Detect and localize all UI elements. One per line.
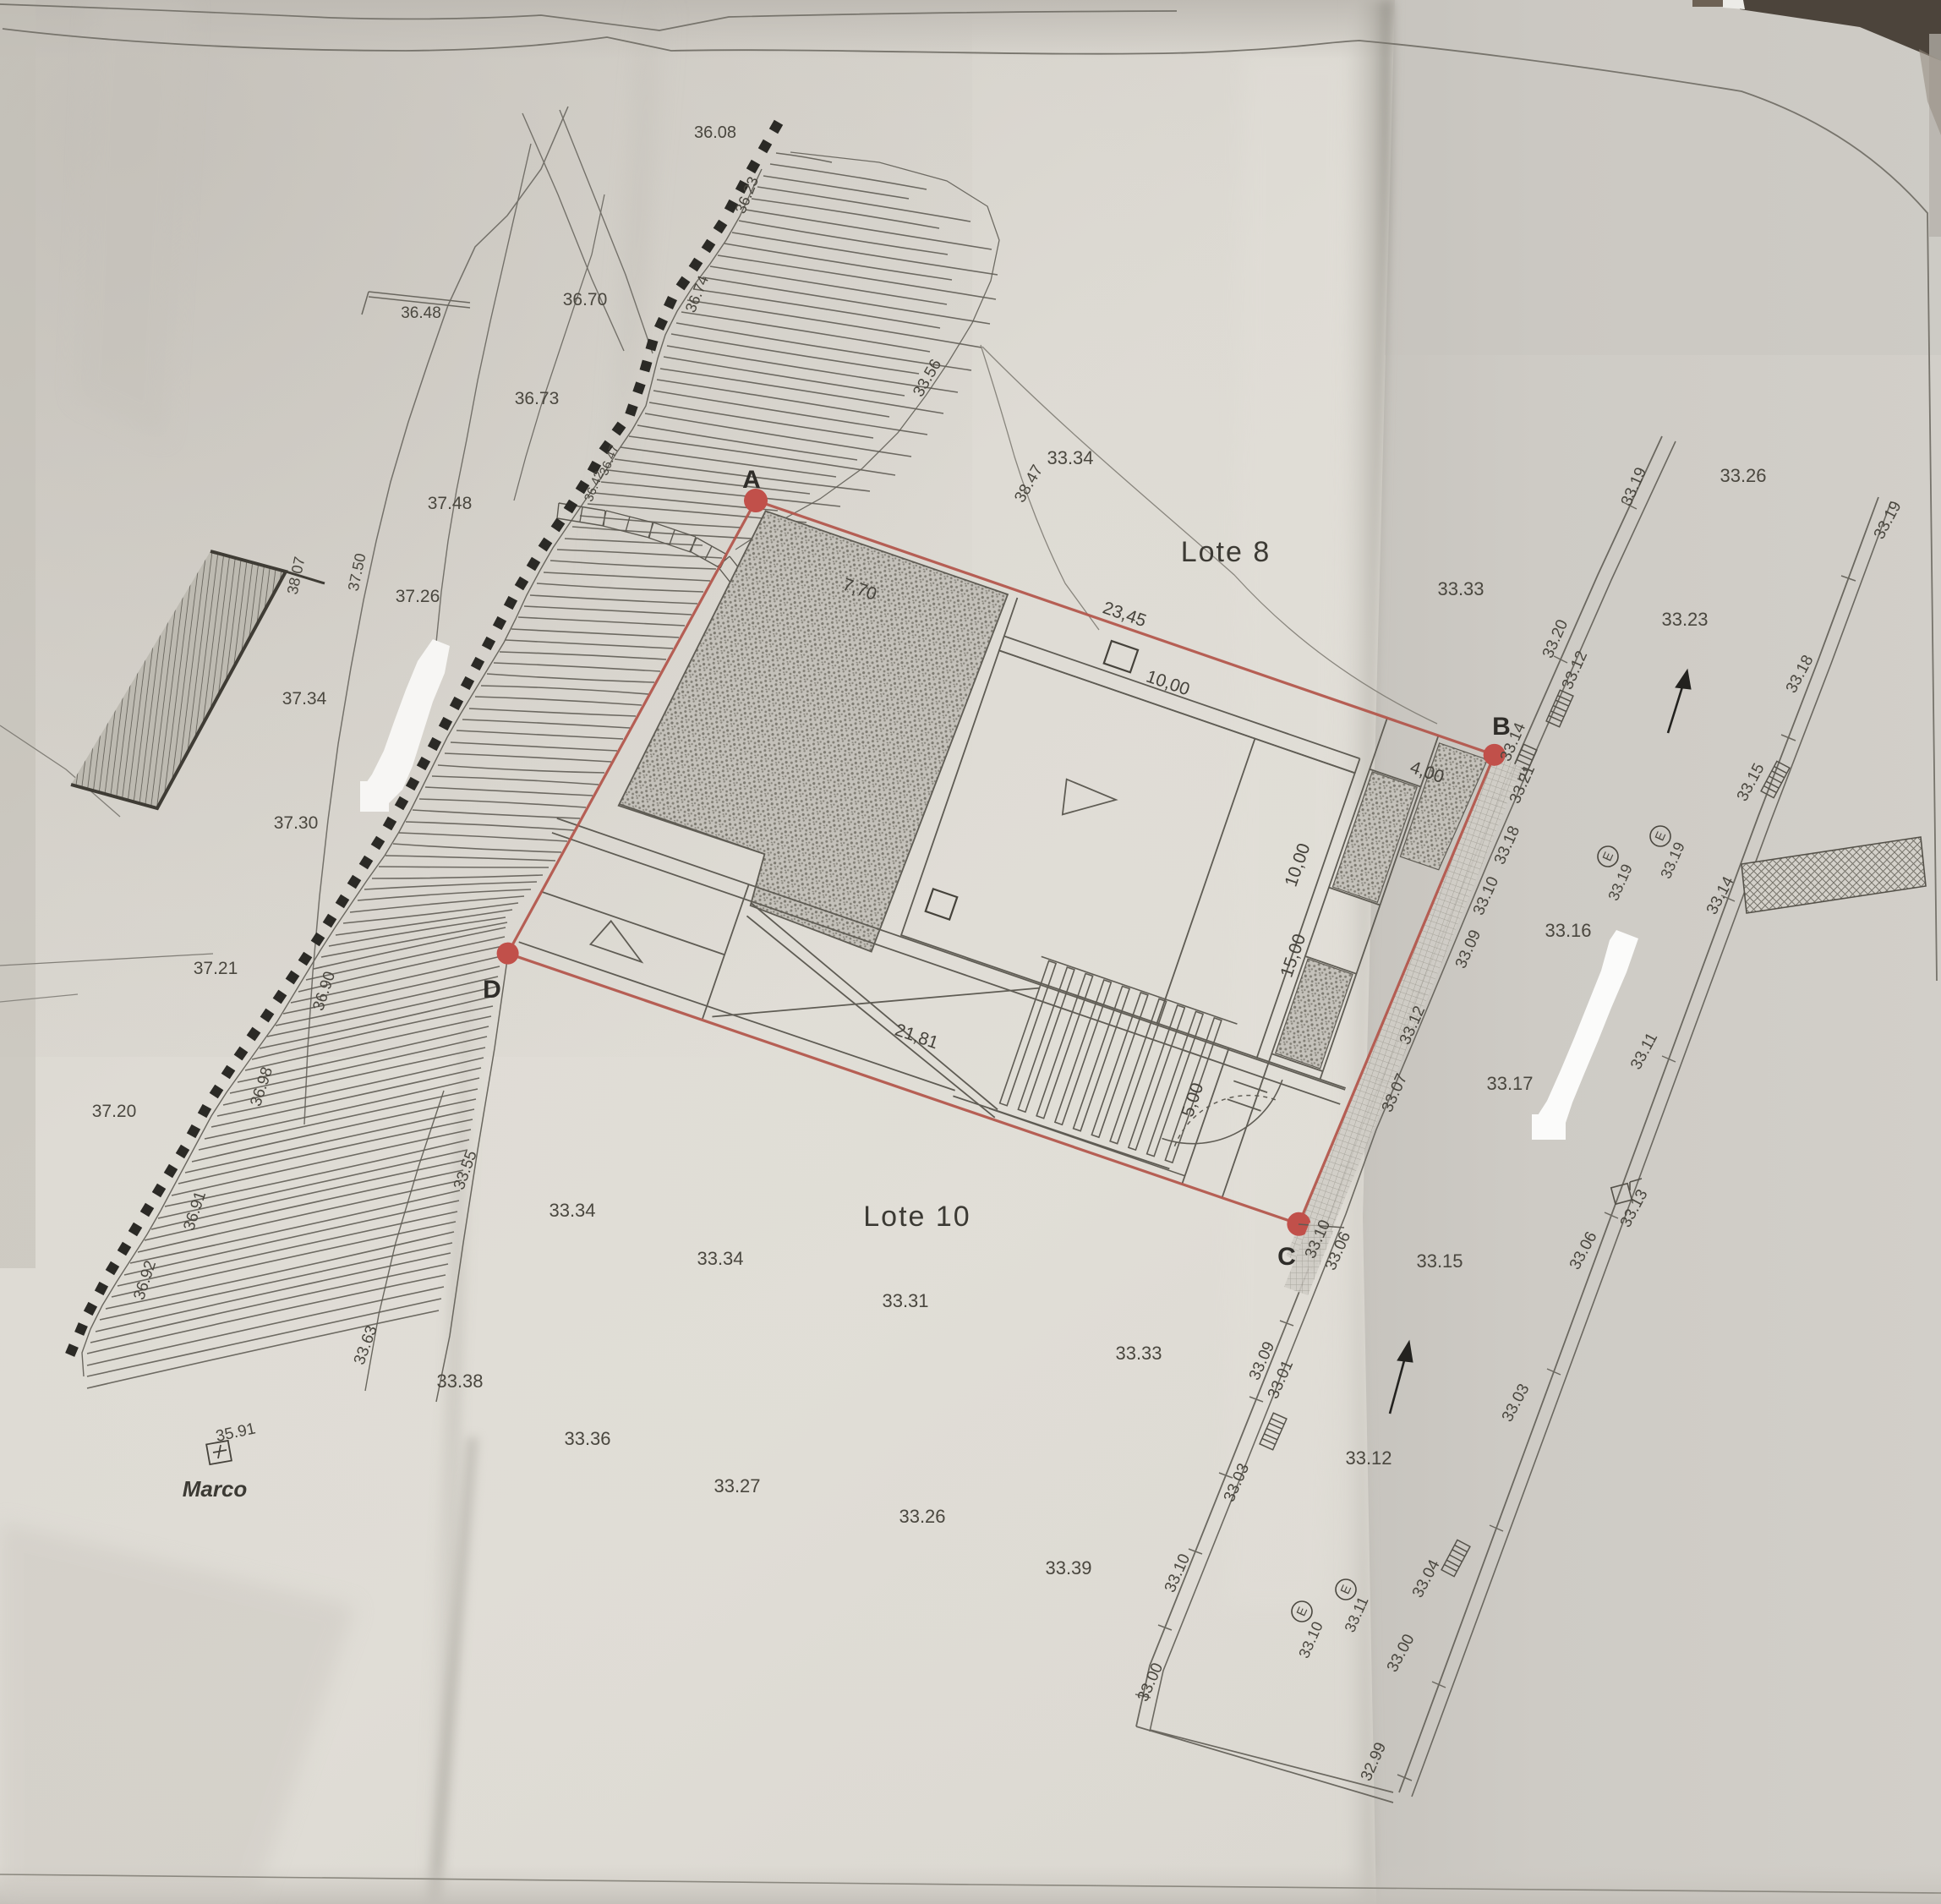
svg-text:33.12: 33.12 [1345, 1447, 1392, 1469]
svg-text:37.26: 37.26 [396, 587, 440, 606]
svg-text:33.39: 33.39 [1045, 1557, 1091, 1578]
svg-text:33.15: 33.15 [1416, 1250, 1463, 1272]
svg-text:37.21: 37.21 [194, 959, 238, 978]
svg-text:33.16: 33.16 [1545, 920, 1591, 941]
svg-text:Lote 10: Lote 10 [863, 1201, 970, 1233]
svg-text:D: D [483, 976, 501, 1004]
svg-text:33.23: 33.23 [1661, 609, 1708, 630]
svg-text:36.73: 36.73 [515, 389, 560, 408]
svg-text:Marco: Marco [183, 1476, 248, 1502]
svg-text:33.34: 33.34 [549, 1200, 595, 1221]
svg-text:37.48: 37.48 [428, 494, 473, 513]
svg-text:33.33: 33.33 [1115, 1343, 1162, 1364]
svg-text:33.31: 33.31 [882, 1290, 928, 1311]
svg-text:37.34: 37.34 [282, 689, 327, 709]
svg-text:36.70: 36.70 [563, 290, 608, 309]
svg-text:33.36: 33.36 [564, 1428, 610, 1449]
svg-text:36.08: 36.08 [694, 123, 736, 142]
svg-text:37.20: 37.20 [92, 1102, 137, 1121]
svg-text:33.38: 33.38 [436, 1371, 483, 1392]
svg-text:33.34: 33.34 [697, 1248, 743, 1269]
svg-text:C: C [1277, 1243, 1296, 1271]
svg-text:33.17: 33.17 [1486, 1073, 1533, 1094]
svg-text:33.27: 33.27 [714, 1475, 760, 1496]
svg-text:A: A [742, 466, 761, 494]
svg-text:36.48: 36.48 [401, 304, 441, 322]
svg-text:33.33: 33.33 [1437, 578, 1484, 599]
svg-text:37.30: 37.30 [274, 813, 319, 833]
svg-text:33.26: 33.26 [1720, 465, 1766, 486]
svg-text:33.34: 33.34 [1047, 447, 1093, 468]
svg-text:33.26: 33.26 [899, 1506, 945, 1527]
svg-text:Lote 8: Lote 8 [1181, 536, 1271, 568]
